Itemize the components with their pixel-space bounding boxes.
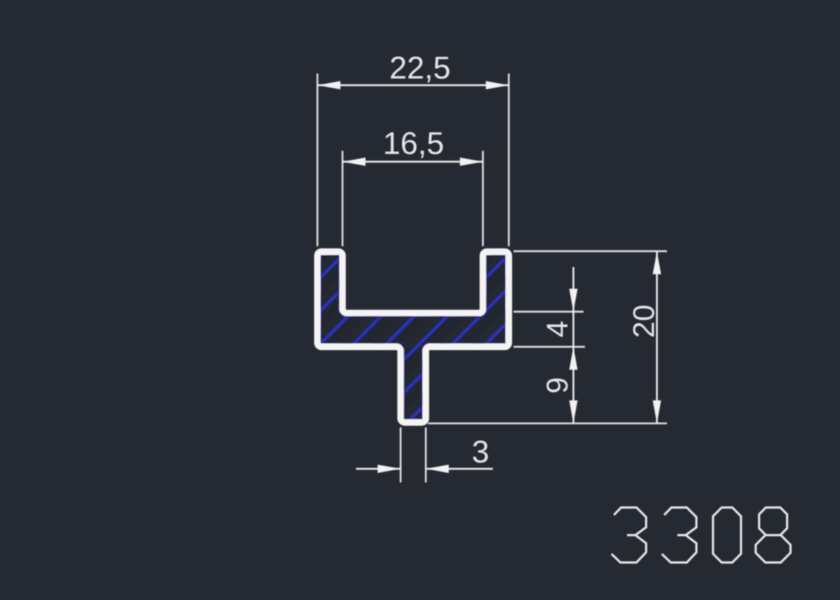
svg-text:22,5: 22,5 [389,50,450,86]
svg-text:20: 20 [628,305,661,338]
svg-text:3: 3 [472,434,490,470]
svg-text:4: 4 [542,321,575,338]
svg-text:16,5: 16,5 [383,125,444,161]
svg-text:9: 9 [542,377,575,394]
